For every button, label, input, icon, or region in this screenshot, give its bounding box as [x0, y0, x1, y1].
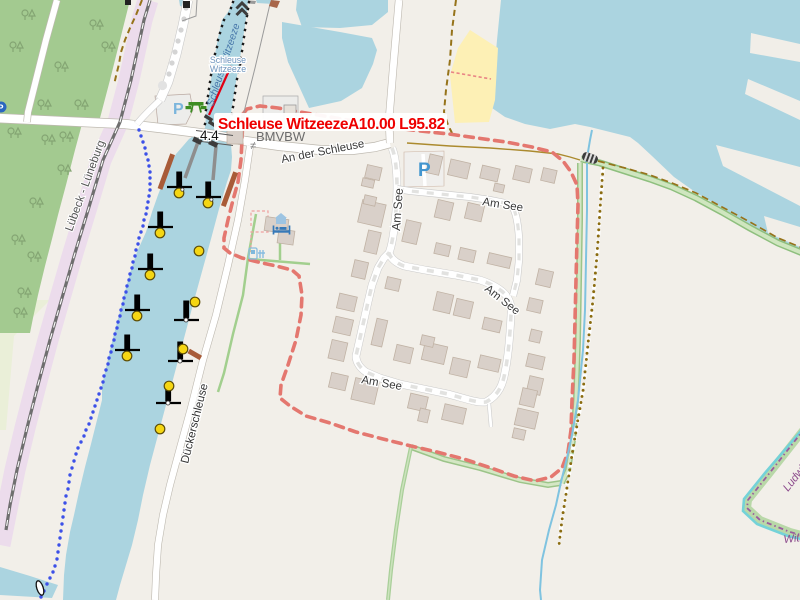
svg-text:4.4: 4.4: [200, 128, 219, 143]
svg-text:P: P: [418, 160, 431, 181]
svg-text:BMVBW: BMVBW: [256, 129, 306, 144]
svg-text:Am See: Am See: [389, 187, 406, 231]
svg-text:P: P: [173, 101, 184, 118]
svg-text:Witzeeze: Witzeeze: [210, 64, 246, 74]
svg-text:Schleuse WitzeezeA10.00 L95.82: Schleuse WitzeezeA10.00 L95.82: [218, 116, 445, 133]
svg-text:P: P: [0, 103, 4, 113]
